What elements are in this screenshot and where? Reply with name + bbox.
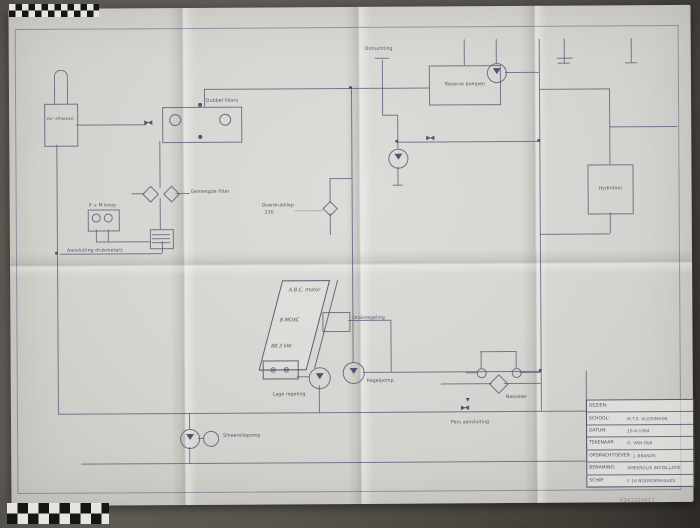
tb-value: J. BRANDS (633, 453, 655, 458)
pipe-segment (496, 39, 497, 63)
photo-background: 0341200617 (0, 0, 700, 528)
title-block-row: DATUM: 10-4-1984 (587, 424, 693, 437)
filter-icon (219, 114, 231, 126)
gauge-icon (104, 213, 113, 222)
check-valve-icon: ▶◀ (144, 120, 151, 126)
pipe-segment (397, 115, 398, 149)
paper-sheet: Vul- aftapkast ▶◀ Dubbel filters Gemengd… (8, 5, 693, 506)
tb-value: F 16 NOORDERHAAKS (627, 478, 675, 483)
drawing-border (15, 25, 682, 494)
pipe-segment (481, 351, 482, 368)
tank-label: Vul- aftapkast (46, 117, 74, 122)
tb-label: GEZIEN: (589, 404, 625, 409)
gauge-icon (92, 214, 101, 223)
control-pump-label: Regelpomp (367, 379, 394, 385)
low-control-label: Lage regeling (273, 392, 306, 398)
pump-icon (343, 362, 365, 384)
mixed-filter-label: Gemengde filter (191, 190, 230, 196)
lube-pump-label: Smeeroliepomp (223, 434, 260, 440)
pipe-segment (330, 178, 352, 179)
tb-label: DATUM: (589, 428, 625, 433)
pump-icon (388, 149, 408, 169)
pipe-segment (393, 185, 403, 186)
tb-label: BENAMING: (589, 466, 625, 471)
pipe-segment (204, 89, 205, 107)
dual-filters-label: Dubbel filters (206, 99, 238, 105)
pipe-segment (55, 252, 58, 255)
color-calibration-strip-top (9, 4, 99, 17)
pipe-segment (564, 39, 565, 63)
drain-control-box (322, 312, 350, 332)
tb-value: M.T.S. VLISSINGEN (627, 416, 668, 421)
valve-circle-icon (477, 368, 487, 378)
tb-label: SCHIP: (589, 478, 625, 483)
tb-value: G. VAN DIJK (627, 441, 652, 446)
pipe-segment (631, 38, 632, 62)
pump-icon (309, 367, 331, 389)
pipe-segment (375, 58, 389, 59)
pipe-segment (481, 351, 516, 352)
tb-label: OPDRACHTGEVER: (589, 453, 631, 458)
three-way-valve-top-icon: ▼ (466, 398, 469, 403)
vent-top-label: Ontluchting (365, 47, 393, 53)
motor-icon (203, 431, 219, 447)
pipe-segment (516, 351, 517, 368)
tb-label: TEKENAAR: (589, 441, 625, 446)
tb-value: 10-4-1984 (627, 428, 650, 433)
pipe-network (8, 5, 690, 9)
hydrophore-label: Hydrofoor (599, 186, 623, 192)
fill-drain-tank (44, 104, 78, 147)
title-block-row: SCHIP: F 16 NOORDERHAAKS (587, 473, 693, 486)
pipe-segment (539, 369, 542, 372)
tb-label: SCHOOL: (589, 416, 625, 421)
thermo-valve-label: Pers aansluiting (451, 420, 489, 426)
pipe-segment (295, 210, 323, 211)
title-block-row: OPDRACHTGEVER: J. BRANDS (587, 449, 693, 462)
tb-value: SMEEROLIE INSTALLATIE (627, 465, 680, 470)
pipe-segment (537, 139, 540, 142)
engine-power-label: 88.3 kW (270, 343, 292, 349)
hydrophore-box: Hydrofoor (587, 164, 633, 214)
valve-circle-icon (512, 368, 522, 378)
title-block-row: BENAMING: SMEEROLIE INSTALLATIE (587, 461, 693, 474)
pipe-segment (189, 447, 190, 463)
pipe-segment (610, 212, 611, 233)
pipe-segment (464, 39, 465, 65)
pipe-segment (330, 178, 331, 203)
pipe-segment (397, 167, 398, 185)
pipe-segment (625, 62, 637, 63)
engine-type-label: 8 MDXC (279, 317, 300, 323)
title-block-row: TEKENAAR: G. VAN DIJK (587, 436, 693, 449)
pipe-segment (395, 140, 398, 143)
relief-valve-label: Overdrukklep (262, 203, 294, 209)
pipe-segment (319, 385, 320, 412)
three-way-valve-icon: ▶◀ (461, 405, 468, 411)
pipe-segment (558, 63, 570, 64)
pump-icon (180, 429, 200, 449)
title-block-row: SCHOOL: M.T.S. VLISSINGEN (587, 411, 693, 424)
engine-pulley-box: ⊗ ⊗ (263, 360, 299, 379)
title-block-row: GEZIEN: (587, 400, 693, 412)
filter-icon (169, 114, 181, 126)
pipe-segment (382, 115, 397, 116)
gauge-connection-label: Aansluiting drukmeters (67, 248, 123, 254)
color-calibration-strip-bottom (7, 503, 109, 524)
archive-id: 0341200617 (620, 498, 655, 504)
relief-valve-value: 230 (265, 210, 274, 216)
manifold-block (150, 229, 174, 249)
pump-icon (487, 63, 507, 83)
engine-make-label: A.B.C. motor (288, 287, 321, 293)
vent-gooseneck-icon (54, 70, 68, 105)
drain-control-label: Drainregeling (352, 316, 385, 322)
aftercooler-label: Nakoeler (506, 395, 527, 401)
pipe-segment (349, 86, 352, 89)
pulley-symbols: ⊗ ⊗ (270, 365, 292, 374)
pipe-segment (520, 372, 541, 373)
pipe-segment (504, 383, 541, 384)
reserve-pumps-label: Reserve pompen (445, 82, 485, 88)
gauge-panel-label: P + M knop (89, 203, 116, 209)
pipe-segment (466, 372, 477, 373)
pipe-segment (505, 72, 539, 73)
pipe-segment (189, 413, 190, 429)
title-block: GEZIEN: SCHOOL: M.T.S. VLISSINGEN DATUM:… (586, 399, 695, 488)
pipe-segment (160, 198, 161, 229)
valve-icon: ▶◀ (426, 135, 433, 141)
